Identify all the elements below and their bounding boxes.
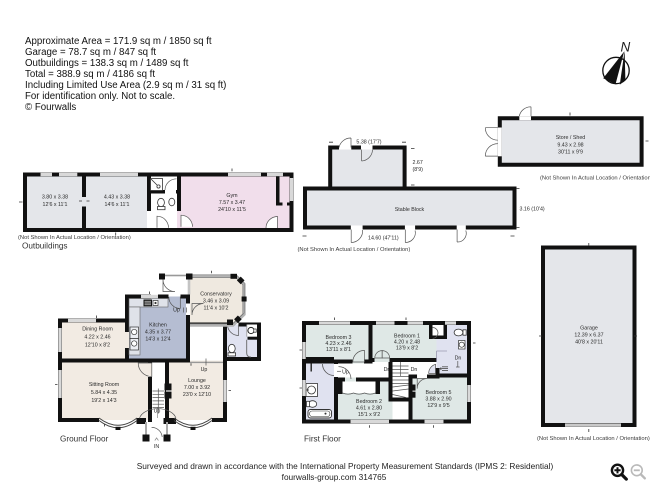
svg-text:19'2 x 14'3: 19'2 x 14'3 xyxy=(91,398,116,404)
svg-text:Gym: Gym xyxy=(226,193,238,199)
svg-text:Total = 388.9 sq m / 4186 sq f: Total = 388.9 sq m / 4186 sq ft xyxy=(25,69,155,80)
svg-text:12'10 x 8'2: 12'10 x 8'2 xyxy=(85,343,110,349)
svg-text:Outbuildings: Outbuildings xyxy=(22,242,68,251)
svg-text:Kitchen: Kitchen xyxy=(149,323,167,329)
svg-text:Bedroom 2: Bedroom 2 xyxy=(356,399,382,405)
svg-text:24'10 x 11'5: 24'10 x 11'5 xyxy=(218,207,246,213)
svg-text:15'1 x 9'2: 15'1 x 9'2 xyxy=(358,412,380,418)
svg-text:12'6 x 11'1: 12'6 x 11'1 xyxy=(43,202,68,208)
svg-text:Up: Up xyxy=(201,367,208,373)
svg-text:3.16 (10'4): 3.16 (10'4) xyxy=(520,207,545,213)
svg-text:Up: Up xyxy=(154,408,161,414)
svg-text:N: N xyxy=(621,40,631,55)
svg-text:Ground Floor: Ground Floor xyxy=(60,435,109,444)
svg-text:Garage = 78.7 sq m / 847 sq ft: Garage = 78.7 sq m / 847 sq ft xyxy=(25,47,156,58)
svg-text:3.88 x 2.90: 3.88 x 2.90 xyxy=(425,397,451,403)
svg-text:12'9 x 9'5: 12'9 x 9'5 xyxy=(427,403,449,409)
svg-text:Including Limited Use Area (2.: Including Limited Use Area (2.9 sq m / 3… xyxy=(25,80,226,91)
svg-text:Store / Shed: Store / Shed xyxy=(556,135,585,141)
svg-text:14'3 x 12'4: 14'3 x 12'4 xyxy=(145,337,170,343)
svg-text:Surveyed and drawn in accordan: Surveyed and drawn in accordance with th… xyxy=(137,461,554,471)
svg-text:(Not Shown In Actual Location: (Not Shown In Actual Location / Orientat… xyxy=(298,247,411,253)
svg-text:23'0 x 12'10: 23'0 x 12'10 xyxy=(183,392,211,398)
svg-text:Sitting Room: Sitting Room xyxy=(89,382,120,388)
svg-text:(Not Shown In Actual Location: (Not Shown In Actual Location / Orientat… xyxy=(18,235,131,241)
svg-text:Dining Room: Dining Room xyxy=(82,327,113,333)
svg-text:© Fourwalls: © Fourwalls xyxy=(25,102,76,113)
svg-text:Bedroom 5: Bedroom 5 xyxy=(426,390,452,396)
svg-text:13'11 x 8'1: 13'11 x 8'1 xyxy=(326,347,351,353)
svg-text:Dn: Dn xyxy=(411,367,418,373)
svg-text:For identification only. Not t: For identification only. Not to scale. xyxy=(25,91,175,102)
svg-text:(Not Shown In Actual Location: (Not Shown In Actual Location / Orientat… xyxy=(540,176,650,182)
svg-text:14.60 (47'11): 14.60 (47'11) xyxy=(368,236,399,242)
svg-text:Conservatory: Conservatory xyxy=(200,292,232,298)
svg-text:2.67: 2.67 xyxy=(413,160,423,166)
svg-text:5.38 (17'7): 5.38 (17'7) xyxy=(356,140,381,146)
svg-text:5.84 x 4.35: 5.84 x 4.35 xyxy=(91,390,117,396)
svg-text:9.43 x 2.98: 9.43 x 2.98 xyxy=(557,143,583,149)
svg-text:30'11 x 9'9: 30'11 x 9'9 xyxy=(558,150,583,156)
svg-text:IN: IN xyxy=(154,444,159,450)
svg-text:Up: Up xyxy=(173,308,180,314)
svg-text:11'4 x 10'2: 11'4 x 10'2 xyxy=(204,306,229,312)
svg-text:4.22 x 2.46: 4.22 x 2.46 xyxy=(84,335,110,341)
svg-text:3.80 x 3.38: 3.80 x 3.38 xyxy=(42,195,68,201)
svg-text:Approximate Area = 171.9 sq m: Approximate Area = 171.9 sq m / 1850 sq … xyxy=(25,36,212,47)
svg-text:4.35 x 3.77: 4.35 x 3.77 xyxy=(145,330,171,336)
svg-text:First Floor: First Floor xyxy=(304,435,341,444)
svg-text:12.39 x 6.37: 12.39 x 6.37 xyxy=(574,333,603,339)
svg-text:Stable Block: Stable Block xyxy=(395,207,425,213)
svg-text:7.00 x 3.92: 7.00 x 3.92 xyxy=(184,385,210,391)
svg-text:Lounge: Lounge xyxy=(188,378,206,384)
svg-text:fourwalls-group.com 314765: fourwalls-group.com 314765 xyxy=(282,472,387,482)
svg-text:Outbuildings = 138.3 sq m / 14: Outbuildings = 138.3 sq m / 1489 sq ft xyxy=(25,58,189,69)
svg-text:7.57 x 3.47: 7.57 x 3.47 xyxy=(219,200,245,206)
svg-text:13'9 x 8'2: 13'9 x 8'2 xyxy=(396,346,418,352)
svg-text:4.43 x 3.38: 4.43 x 3.38 xyxy=(104,195,130,201)
svg-text:Dn: Dn xyxy=(455,356,462,362)
svg-text:40'8 x 20'11: 40'8 x 20'11 xyxy=(575,340,603,346)
svg-text:Garage: Garage xyxy=(580,326,598,332)
svg-text:(8'9): (8'9) xyxy=(413,167,424,173)
svg-text:14'6 x 11'1: 14'6 x 11'1 xyxy=(105,202,130,208)
svg-text:4.61 x 2.80: 4.61 x 2.80 xyxy=(356,406,382,412)
svg-text:3.46 x 3.09: 3.46 x 3.09 xyxy=(203,299,229,305)
svg-text:(Not Shown In Actual Location: (Not Shown In Actual Location / Orientat… xyxy=(537,436,650,442)
